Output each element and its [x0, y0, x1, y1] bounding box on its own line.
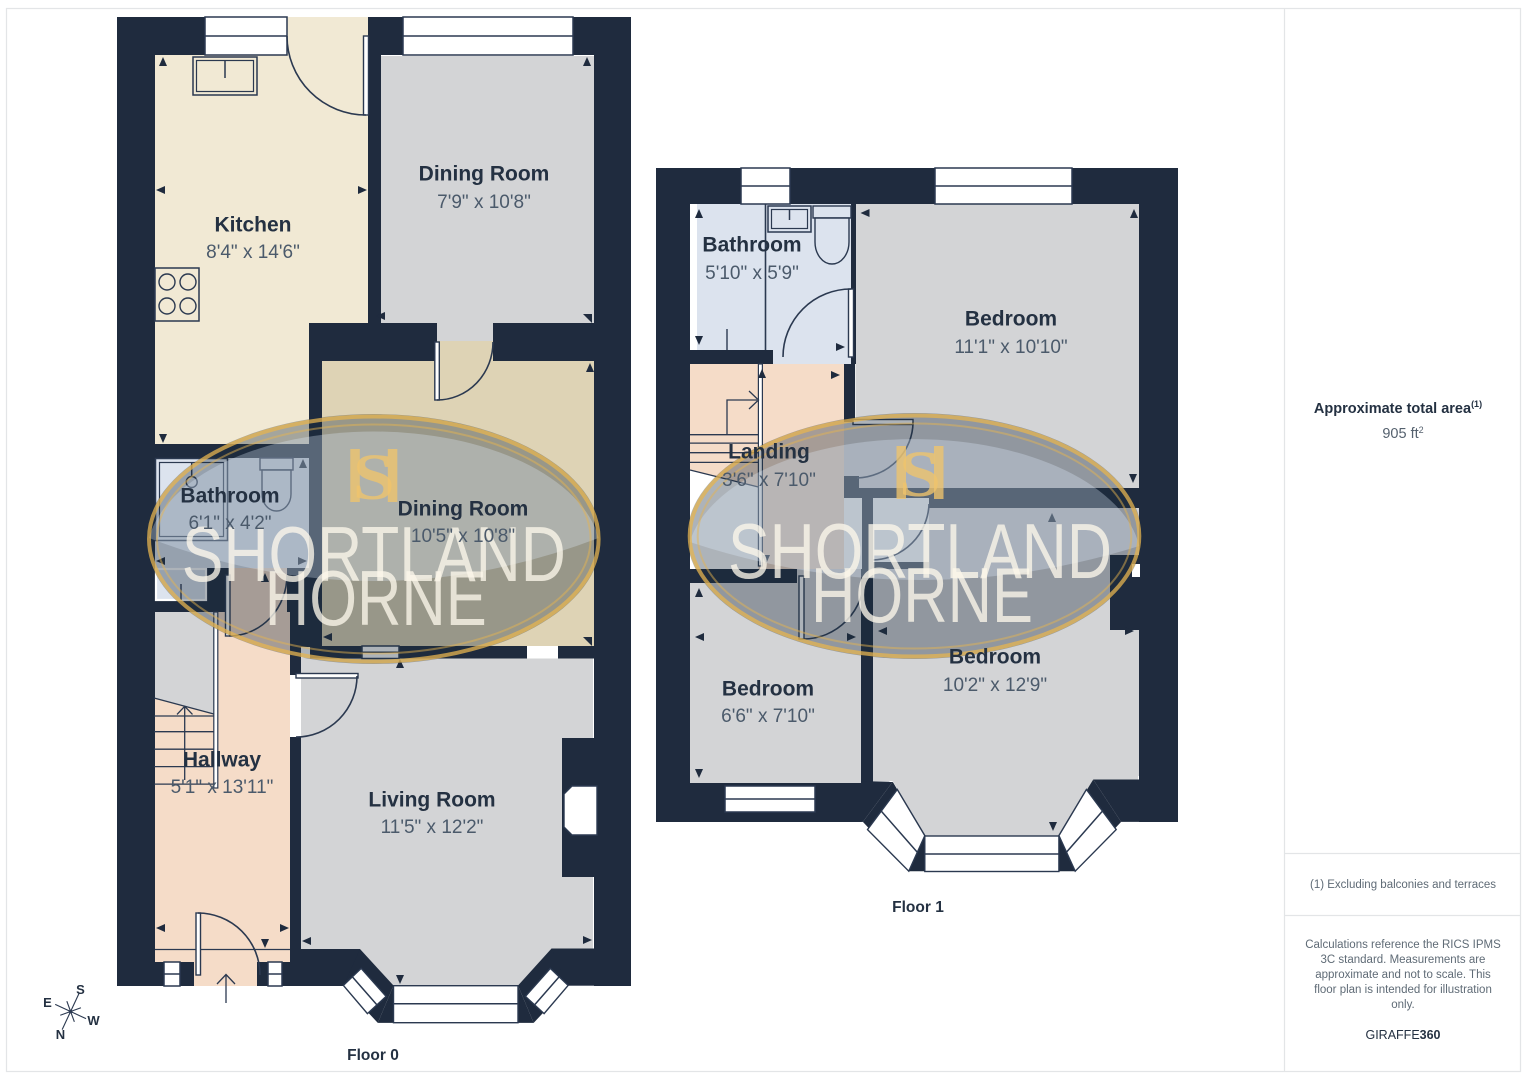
svg-text:Calculations reference the RIC: Calculations reference the RICS IPMS — [1305, 939, 1501, 951]
svg-text:Floor 0: Floor 0 — [347, 1047, 399, 1064]
svg-text:HORNE: HORNE — [265, 554, 487, 642]
svg-text:S: S — [353, 441, 395, 514]
svg-text:905 ft2: 905 ft2 — [1382, 425, 1423, 442]
svg-text:11'1" x 10'10": 11'1" x 10'10" — [954, 337, 1067, 358]
svg-text:Bedroom: Bedroom — [965, 308, 1057, 331]
svg-text:Dining Room: Dining Room — [398, 498, 529, 521]
svg-text:Dining Room: Dining Room — [419, 163, 550, 186]
svg-text:E: E — [43, 995, 52, 1010]
svg-text:Landing: Landing — [728, 441, 810, 464]
svg-text:S: S — [76, 982, 85, 997]
svg-text:HORNE: HORNE — [811, 551, 1033, 639]
svg-text:11'5" x 12'2": 11'5" x 12'2" — [381, 817, 484, 838]
svg-text:N: N — [56, 1027, 65, 1042]
svg-text:Floor 1: Floor 1 — [892, 899, 944, 916]
svg-text:Bedroom: Bedroom — [949, 646, 1041, 669]
svg-text:Kitchen: Kitchen — [214, 214, 291, 237]
svg-text:10'2" x 12'9": 10'2" x 12'9" — [943, 675, 1047, 696]
svg-text:W: W — [87, 1013, 100, 1028]
svg-text:Living Room: Living Room — [368, 789, 495, 812]
svg-text:only.: only. — [1391, 999, 1414, 1011]
svg-text:Approximate total area(1): Approximate total area(1) — [1314, 399, 1482, 417]
svg-text:5'1" x 13'11": 5'1" x 13'11" — [171, 777, 274, 798]
svg-text:7'9" x 10'8": 7'9" x 10'8" — [437, 192, 531, 213]
svg-text:Bathroom: Bathroom — [180, 485, 279, 508]
svg-text:Bathroom: Bathroom — [702, 234, 801, 257]
svg-text:approximate and not to scale.: approximate and not to scale. This — [1315, 969, 1491, 981]
svg-text:Bedroom: Bedroom — [722, 678, 814, 701]
svg-text:6'1" x 4'2": 6'1" x 4'2" — [188, 513, 271, 534]
svg-text:3C standard. Measurements are: 3C standard. Measurements are — [1321, 954, 1486, 966]
svg-text:3'6" x 7'10": 3'6" x 7'10" — [722, 470, 816, 491]
svg-text:6'6" x 7'10": 6'6" x 7'10" — [721, 706, 815, 727]
svg-text:GIRAFFE360: GIRAFFE360 — [1365, 1028, 1440, 1042]
svg-text:floor plan is intended for ill: floor plan is intended for illustration — [1314, 984, 1492, 996]
svg-text:S: S — [899, 438, 941, 511]
svg-text:5'10" x 5'9": 5'10" x 5'9" — [705, 263, 799, 284]
svg-text:(1) Excluding balconies and te: (1) Excluding balconies and terraces — [1310, 879, 1496, 891]
svg-text:8'4" x 14'6": 8'4" x 14'6" — [206, 242, 300, 263]
svg-text:Hallway: Hallway — [183, 749, 262, 772]
svg-text:10'5" x 10'8": 10'5" x 10'8" — [411, 526, 515, 547]
